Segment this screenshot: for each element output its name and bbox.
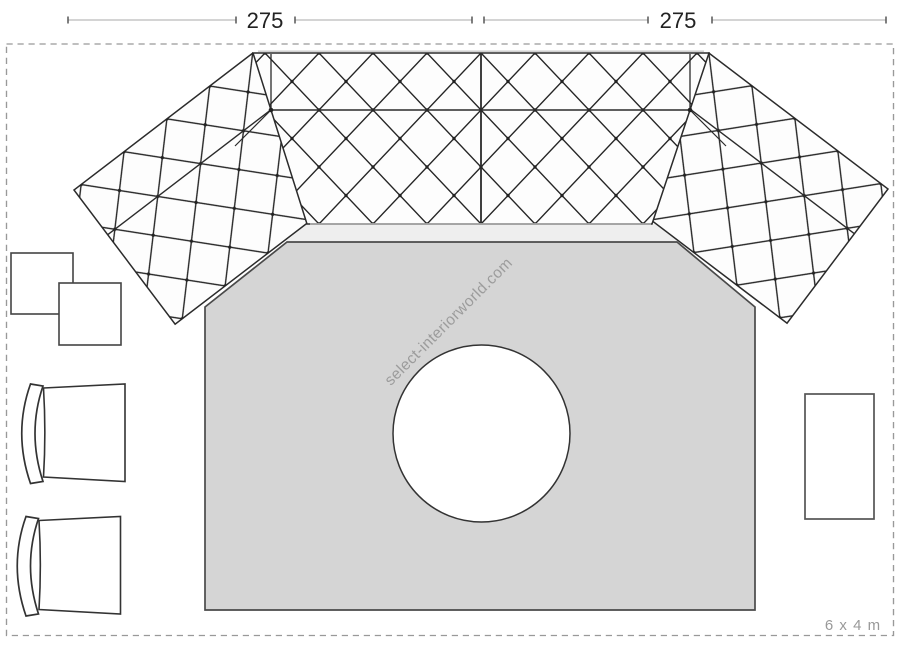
svg-text:6 x 4 m: 6 x 4 m xyxy=(825,617,881,634)
svg-text:275: 275 xyxy=(247,8,284,33)
svg-text:275: 275 xyxy=(660,8,697,33)
